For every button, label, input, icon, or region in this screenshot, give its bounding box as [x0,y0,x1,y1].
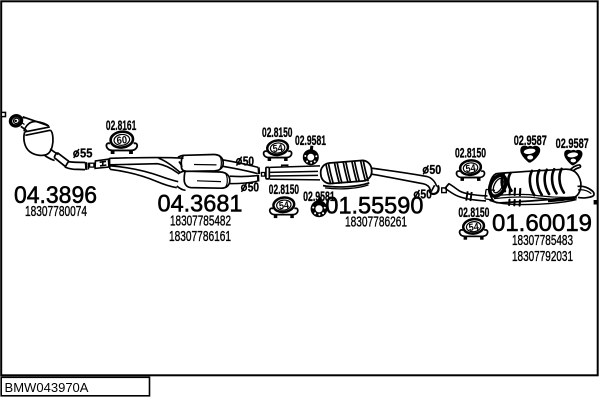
svg-text:50: 50 [243,154,254,168]
svg-text:18307785483: 18307785483 [512,233,573,249]
svg-text:50: 50 [429,163,441,177]
svg-text:50: 50 [248,181,259,195]
svg-text:02.8150: 02.8150 [269,182,299,197]
svg-text:02.9581: 02.9581 [295,133,326,148]
svg-text:18307785482: 18307785482 [170,214,231,230]
svg-text:18307792031: 18307792031 [512,249,573,265]
svg-text:BMW043970A: BMW043970A [5,380,89,395]
svg-text:02.9587: 02.9587 [514,133,547,148]
svg-text:02.9587: 02.9587 [556,136,589,151]
svg-text:02.8150: 02.8150 [458,205,489,220]
svg-text:18307786161: 18307786161 [169,229,231,245]
svg-text:18307786261: 18307786261 [345,214,407,230]
svg-text:18307780074: 18307780074 [25,204,87,220]
svg-text:02.8150: 02.8150 [455,146,486,161]
svg-text:02.8150: 02.8150 [262,125,293,140]
svg-text:55: 55 [80,147,92,161]
